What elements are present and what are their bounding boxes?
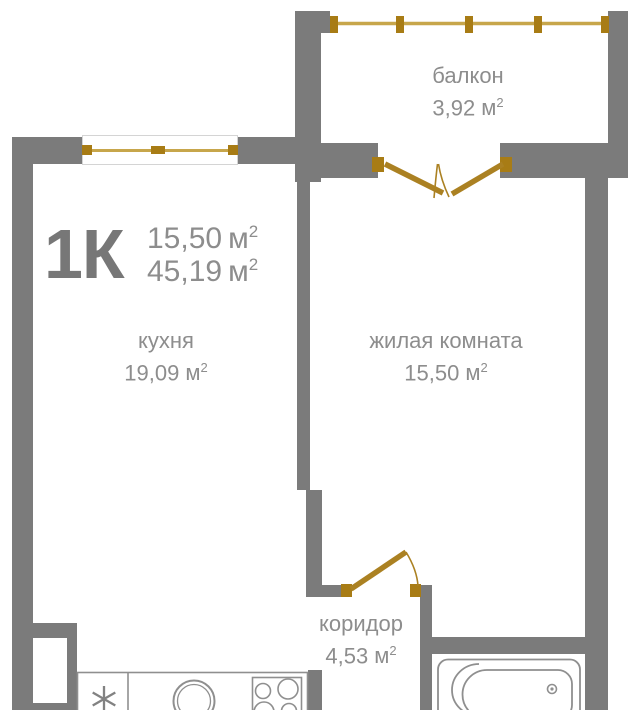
- room-name: кухня: [66, 327, 266, 354]
- apartment-type-title: 1К: [44, 219, 124, 289]
- balcony-railing-icon: [330, 16, 609, 33]
- room-area: 19,09м2: [66, 354, 266, 386]
- kitchen-label: кухня 19,09м2: [66, 327, 266, 386]
- floor-plan: 1К 15,50м2 45,19м2 кухня 19,09м2 жилая к…: [0, 0, 640, 710]
- balcony-label: балкон 3,92м2: [368, 62, 568, 121]
- room-name: жилая комната: [346, 327, 546, 354]
- kitchen-window-icon: [82, 136, 238, 165]
- stove-icon: [253, 678, 302, 710]
- room-name: коридор: [261, 610, 461, 637]
- header-total-area: 45,19м2: [147, 256, 258, 287]
- room-name: балкон: [368, 62, 568, 89]
- corridor-door-icon: [341, 552, 421, 597]
- header-living-area: 15,50м2: [147, 223, 258, 254]
- living-room-label: жилая комната 15,50м2: [346, 327, 546, 386]
- room-area: 15,50м2: [346, 354, 546, 386]
- room-area: 3,92м2: [368, 89, 568, 121]
- balcony-double-door-icon: [372, 157, 512, 198]
- room-area: 4,53м2: [261, 637, 461, 669]
- corridor-label: коридор 4,53м2: [261, 610, 461, 669]
